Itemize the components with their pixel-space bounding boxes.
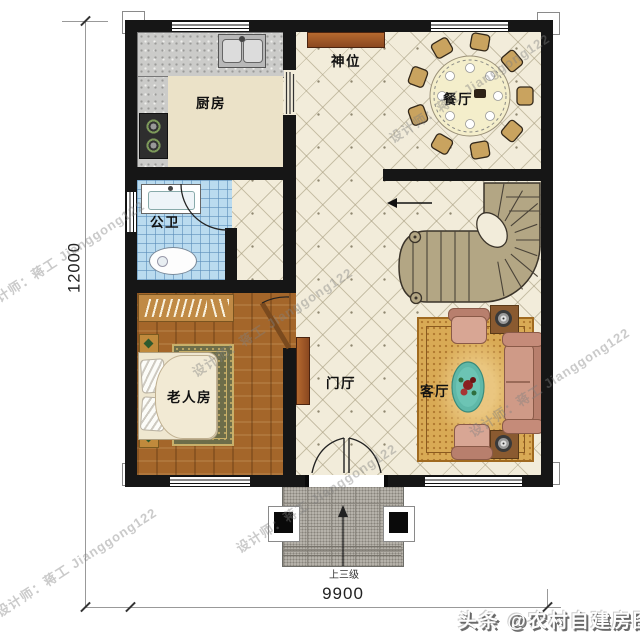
squat-toilet <box>149 247 197 275</box>
room-label-living: 客厅 <box>420 380 450 400</box>
wall-bath-right <box>225 228 237 280</box>
sofa-arm-top <box>502 332 544 347</box>
window-bottom-bedroom <box>170 476 250 486</box>
dim-label-width: 9900 <box>303 584 383 604</box>
sofa-arm-bottom <box>502 419 544 434</box>
wall-kitchen-bottom <box>137 167 296 180</box>
window-bottom-living <box>425 476 522 486</box>
entry-steps-note: 上三级 <box>314 566 374 581</box>
room-label-kitchen: 厨房 <box>196 92 226 112</box>
wall-kitchen-right-upper <box>283 32 296 70</box>
stove-burner <box>146 138 161 153</box>
bath-faucet <box>168 186 173 191</box>
wall-right <box>541 20 553 487</box>
credit-watermark: 头条 @农村自建房图纸 <box>458 606 640 633</box>
kitchen-sink <box>218 34 266 68</box>
entry-column-right <box>389 512 408 533</box>
wall-dining-stair-divider <box>383 169 541 181</box>
bath-basin <box>148 191 195 210</box>
bath-sink <box>141 184 201 214</box>
wardrobe <box>138 294 234 322</box>
sink-faucet <box>239 36 245 42</box>
foyer-cabinet <box>296 337 310 405</box>
window-top-kitchen <box>172 21 249 31</box>
room-label-shrine: 神位 <box>331 50 361 70</box>
sink-basin-right <box>243 39 263 63</box>
sofa-cushion-line <box>506 381 530 383</box>
shrine-cabinet <box>307 32 385 48</box>
window-top-dining <box>431 21 508 31</box>
floor-plan: 厨房 神位 餐厅 公卫 老人房 门厅 客厅 12000 9900 上三级 设计师… <box>0 0 640 640</box>
room-label-bathroom: 公卫 <box>150 211 180 231</box>
room-label-foyer: 门厅 <box>326 372 356 392</box>
entry-step-edges <box>283 546 401 556</box>
armchair-top <box>448 308 488 342</box>
side-table-top <box>490 305 519 334</box>
room-label-elder-bedroom: 老人房 <box>167 386 212 406</box>
wall-bedroom-right-lower <box>283 348 296 475</box>
hanger-rail <box>144 299 207 317</box>
entrance-jamb-right <box>384 475 388 487</box>
armchair-seat <box>451 316 487 344</box>
dim-line-vertical <box>85 22 86 608</box>
nightstand-top <box>139 334 159 354</box>
kitchen-stove <box>139 113 168 159</box>
wall-bath-bottom <box>137 280 296 293</box>
hanger-rail <box>209 299 229 317</box>
sink-basin-left <box>222 39 242 63</box>
stove-burner <box>146 119 161 134</box>
toilet-drain <box>157 256 168 267</box>
wall-bedroom-right-upper <box>283 180 296 293</box>
side-table-bottom <box>490 430 519 459</box>
wall-left <box>125 20 137 487</box>
entrance-jamb-left <box>305 475 309 487</box>
designer-watermark: 设计师：蒋工 Jianggong122 <box>0 502 160 620</box>
armchair-back <box>451 446 493 460</box>
